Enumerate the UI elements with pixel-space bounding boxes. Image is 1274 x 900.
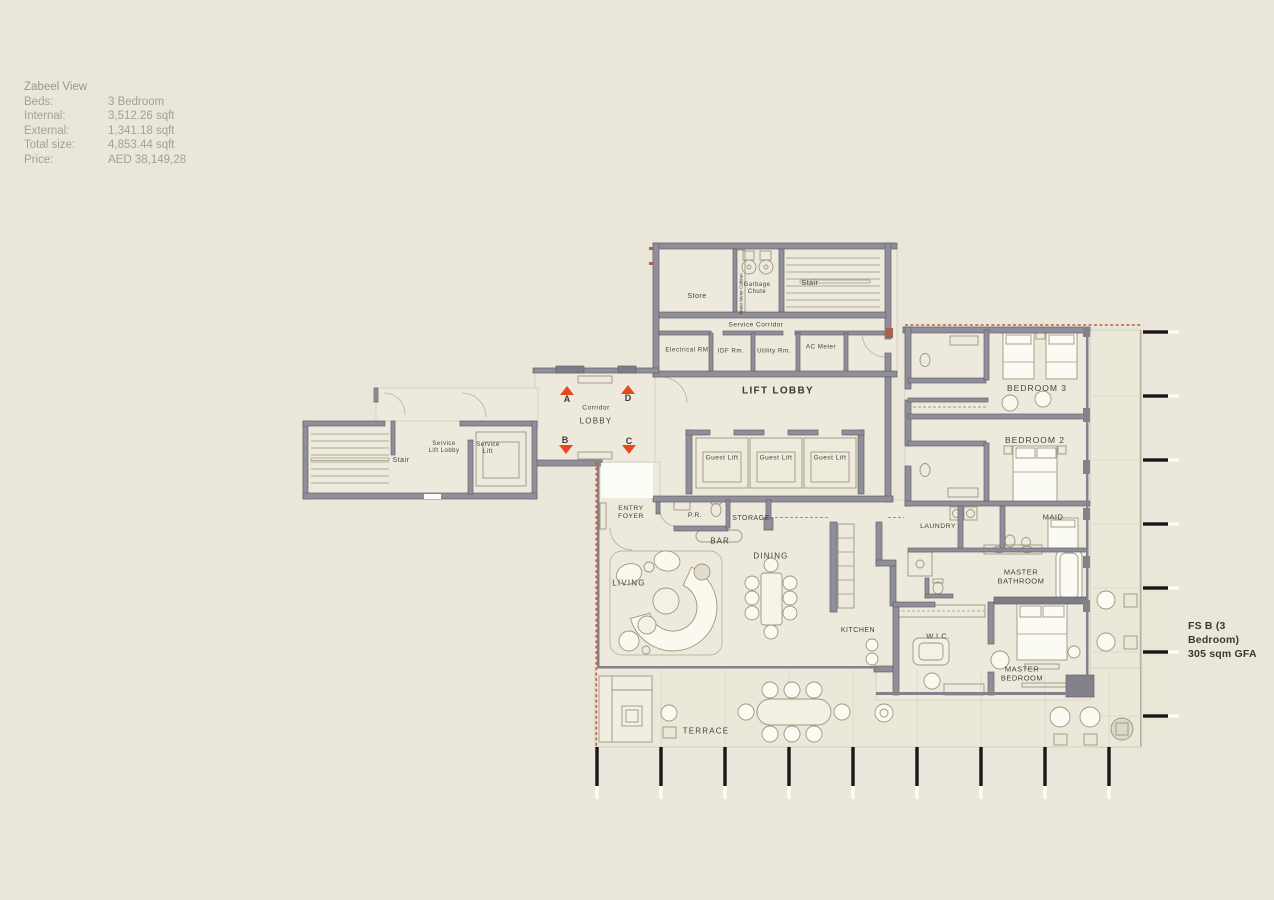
room-label-living: LIVING	[612, 578, 645, 587]
room-label-wic: W.I.C.	[926, 633, 949, 642]
room-label-laundry: LAUNDRY	[920, 523, 956, 531]
room-label-kitchen: KITCHEN	[841, 627, 875, 635]
room-label-guest-lift-1: Guest Lift	[706, 454, 739, 461]
info-row-external: External: 1,341.18 sqft	[24, 124, 186, 139]
room-label-maid: MAID	[1043, 514, 1064, 523]
room-label-stair-top: Stair	[802, 280, 819, 288]
room-label-master-bedroom: MASTER BEDROOM	[1001, 665, 1043, 682]
room-label-guest-lift-3: Guest Lift	[814, 454, 847, 461]
room-label-dining: DINING	[753, 551, 788, 560]
room-label-garbage-chute: Garbage Chute	[744, 282, 771, 296]
room-label-ac-meter: AC Meter	[806, 343, 836, 350]
room-label-terrace: TERRACE	[683, 726, 730, 735]
section-marker-a: A	[564, 394, 571, 404]
section-marker-d: D	[625, 393, 632, 403]
info-panel: Zabeel View Beds: 3 Bedroom Internal: 3,…	[24, 80, 186, 167]
room-label-store: Store	[687, 293, 706, 301]
room-label-water-meter: Water Meter Cabinet	[738, 273, 743, 314]
room-label-electrical-rm: Electrical RM.	[665, 346, 710, 353]
room-label-utility-rm: Utility Rm.	[757, 347, 791, 354]
room-label-service-corridor: Service Corridor	[729, 321, 784, 328]
room-label-storage: STORAGE	[732, 515, 770, 523]
room-label-service-lift-lobby: Service Lift Lobby	[428, 441, 459, 455]
room-label-service-lift: Service Lift	[476, 442, 500, 456]
exit-door-mark	[886, 328, 893, 338]
unit-type-label: FS B (3 Bedroom) 305 sqm GFA	[1188, 619, 1274, 661]
room-label-stair-left: Stair	[393, 457, 410, 465]
door-mark-small-1	[649, 247, 653, 250]
info-row-internal: Internal: 3,512.26 sqft	[24, 109, 186, 124]
room-label-powder-room: P.R.	[688, 512, 702, 520]
room-label-corridor: Corridor	[582, 404, 609, 411]
section-marker-c: C	[626, 436, 633, 446]
room-label-lobby: LOBBY	[580, 416, 613, 425]
room-label-master-bathroom: MASTER BATHROOM	[998, 568, 1045, 585]
room-label-bedroom-2: BEDROOM 2	[1005, 436, 1065, 446]
plan-title: Zabeel View	[24, 80, 186, 95]
floor-plan-page: Zabeel View Beds: 3 Bedroom Internal: 3,…	[0, 0, 1274, 900]
section-marker-b: B	[562, 435, 569, 445]
room-label-guest-lift-2: Guest Lift	[760, 454, 793, 461]
info-row-beds: Beds: 3 Bedroom	[24, 95, 186, 110]
door-mark-small-2	[649, 262, 653, 265]
room-label-bedroom-3: BEDROOM 3	[1007, 384, 1067, 394]
room-label-entry-foyer: ENTRY FOYER	[618, 505, 644, 521]
room-label-idf-rm: IDF Rm.	[718, 347, 745, 354]
info-row-total-size: Total size: 4,853.44 sqft	[24, 138, 186, 153]
room-label-bar: BAR	[710, 536, 729, 545]
info-row-price: Price: AED 38,149,28	[24, 153, 186, 168]
room-label-lift-lobby: LIFT LOBBY	[742, 385, 814, 397]
floor-plan-canvas	[0, 0, 1274, 900]
